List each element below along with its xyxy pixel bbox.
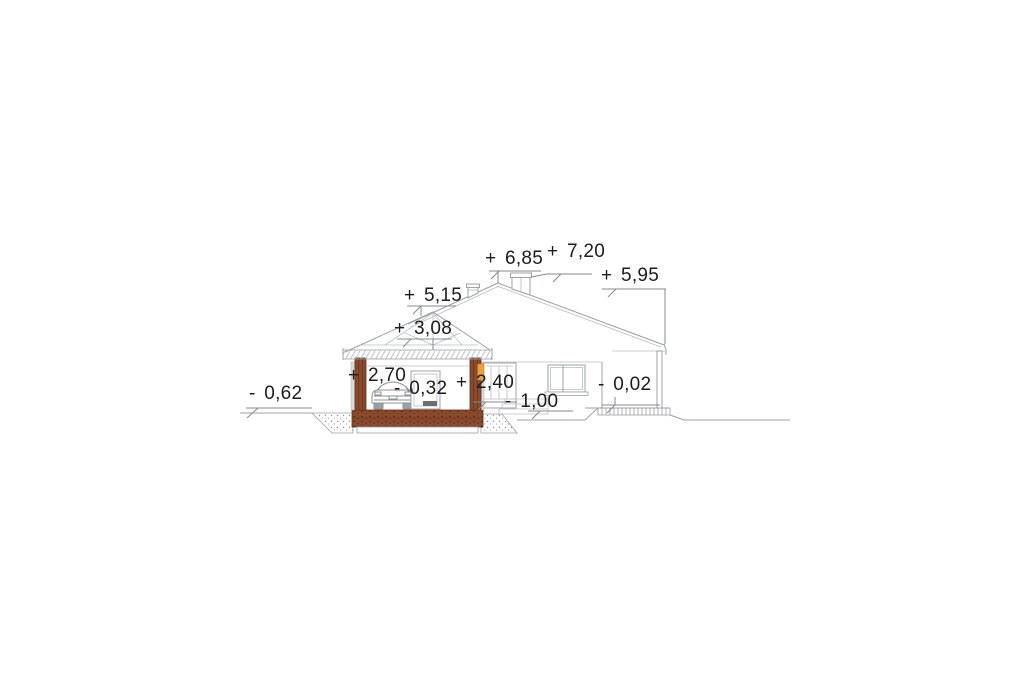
level-label-porch-floor: - 0,02 [598,375,651,395]
level-label-door-top: + 2,40 [456,373,514,393]
elevation-linework [0,0,1024,682]
footing-left [312,413,353,433]
porch-post [657,351,662,408]
door-mat [423,401,437,406]
level-label-main-ridge: + 6,85 [485,249,543,269]
level-label-terrace: - 1,00 [505,392,558,412]
level-label-eave-right: + 5,95 [601,266,659,286]
floor-slab [352,410,483,433]
level-label-garage-floor: - 0,32 [394,379,447,399]
level-label-garage-gable: + 3,08 [394,319,452,339]
elevation-drawing: - 0,62 + 5,15 + 3,08 + 2,70 - 0,32 + 2,4… [0,0,1024,682]
level-label-ground-left: - 0,62 [249,384,302,404]
level-label-garage-ridge: + 5,15 [404,286,462,306]
garage-roof-band [343,348,492,360]
level-label-chimney-top: + 7,20 [547,242,605,262]
chimney [511,273,532,295]
footing-right [481,414,517,433]
